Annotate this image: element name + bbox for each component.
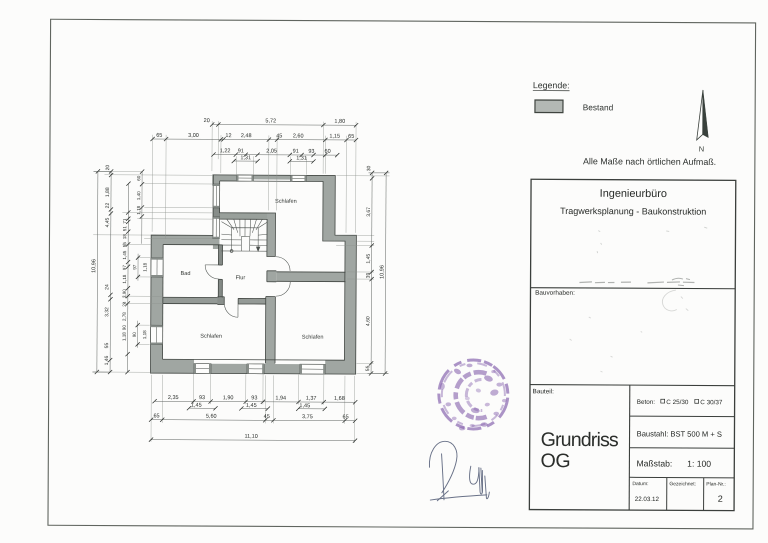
svg-text:2,90: 2,90 <box>122 289 127 298</box>
svg-text:55: 55 <box>365 365 371 371</box>
svg-text:11,10: 11,10 <box>244 434 257 440</box>
svg-text:1,31: 1,31 <box>296 156 307 162</box>
svg-text:18: 18 <box>122 234 127 240</box>
svg-text:93: 93 <box>199 395 205 401</box>
svg-text:2,05: 2,05 <box>266 148 277 154</box>
svg-text:Plan-Nr.:: Plan-Nr.: <box>706 481 725 487</box>
svg-text:Gezeichnet:: Gezeichnet: <box>669 481 696 487</box>
svg-text:1,40: 1,40 <box>136 191 141 200</box>
svg-text:1,45: 1,45 <box>122 250 127 259</box>
svg-text:65: 65 <box>156 133 162 139</box>
svg-text:1,88: 1,88 <box>105 187 111 197</box>
svg-text:C 30/37: C 30/37 <box>700 399 723 406</box>
svg-text:1,15: 1,15 <box>329 134 340 140</box>
svg-text:60: 60 <box>136 175 141 181</box>
svg-text:1,31: 1,31 <box>240 155 251 161</box>
svg-text:39: 39 <box>366 273 372 279</box>
svg-text:65: 65 <box>343 414 349 420</box>
svg-text:Baustahl: BST 500 M + S: Baustahl: BST 500 M + S <box>637 429 722 438</box>
svg-text:91: 91 <box>293 149 299 155</box>
svg-text:3,75: 3,75 <box>302 414 313 420</box>
svg-text:Grundriss: Grundriss <box>541 429 619 451</box>
svg-text:Schlafen: Schlafen <box>275 199 297 205</box>
svg-text:1,90: 1,90 <box>223 395 234 401</box>
svg-text:1,68: 1,68 <box>334 396 345 402</box>
svg-text:1,37: 1,37 <box>306 396 317 402</box>
svg-text:90: 90 <box>122 325 127 331</box>
svg-text:Schlafen: Schlafen <box>200 334 222 340</box>
svg-text:Schlafen: Schlafen <box>302 335 324 341</box>
svg-text:2,78: 2,78 <box>122 312 127 321</box>
svg-text:10,96: 10,96 <box>91 259 97 273</box>
svg-text:22.03.12: 22.03.12 <box>635 496 660 503</box>
svg-text:65: 65 <box>153 413 159 419</box>
svg-text:Flur: Flur <box>236 275 246 281</box>
svg-text:N: N <box>699 144 704 153</box>
svg-text:22: 22 <box>105 203 111 209</box>
svg-text:91: 91 <box>238 148 244 154</box>
svg-text:Ingenieurbüro: Ingenieurbüro <box>600 188 667 200</box>
svg-text:55: 55 <box>104 343 110 349</box>
svg-text:51: 51 <box>122 226 127 232</box>
svg-text:Bauteil:: Bauteil: <box>533 388 555 395</box>
svg-text:65: 65 <box>348 134 354 140</box>
svg-text:2,60: 2,60 <box>293 133 304 139</box>
svg-text:71: 71 <box>122 218 127 224</box>
svg-text:3,00: 3,00 <box>188 133 199 139</box>
svg-text:1,18: 1,18 <box>136 205 141 214</box>
svg-text:3,32: 3,32 <box>104 307 110 317</box>
svg-text:Legende:: Legende: <box>533 80 570 90</box>
svg-text:Alle Maße nach örtlichen Aufma: Alle Maße nach örtlichen Aufmaß. <box>583 156 716 167</box>
svg-text:90: 90 <box>132 332 137 338</box>
svg-text:1,18: 1,18 <box>122 332 127 341</box>
svg-text:10,96: 10,96 <box>379 265 385 279</box>
svg-text:3,67: 3,67 <box>366 207 372 217</box>
svg-text:1,45: 1,45 <box>366 254 372 264</box>
svg-text:4,60: 4,60 <box>365 316 371 326</box>
svg-text:Beton:: Beton: <box>637 399 655 406</box>
svg-text:60: 60 <box>325 149 331 155</box>
svg-text:12: 12 <box>225 133 231 139</box>
svg-text:Bauvorhaben:: Bauvorhaben: <box>535 290 575 297</box>
svg-text:5,72: 5,72 <box>265 118 276 124</box>
svg-text:20: 20 <box>105 165 111 171</box>
svg-text:1,18: 1,18 <box>142 330 147 339</box>
svg-text:20: 20 <box>204 118 210 124</box>
svg-text:5,60: 5,60 <box>206 414 217 420</box>
svg-text:1,45: 1,45 <box>246 403 257 409</box>
svg-text:1,45: 1,45 <box>191 403 202 409</box>
svg-text:1,45: 1,45 <box>299 403 310 409</box>
svg-text:93: 93 <box>251 395 257 401</box>
svg-text:C 25/30: C 25/30 <box>666 399 689 406</box>
svg-text:1,22: 1,22 <box>220 148 231 154</box>
svg-text:2: 2 <box>718 494 723 504</box>
svg-text:45: 45 <box>264 414 270 420</box>
svg-text:1,94: 1,94 <box>275 396 286 402</box>
svg-text:24: 24 <box>104 284 110 290</box>
svg-text:Datum:: Datum: <box>632 481 648 487</box>
svg-text:97: 97 <box>122 265 127 271</box>
svg-text:1: 100: 1: 100 <box>687 459 711 469</box>
svg-text:24: 24 <box>122 301 127 307</box>
svg-text:Bad: Bad <box>180 271 190 277</box>
svg-text:30: 30 <box>366 165 372 171</box>
svg-text:2,48: 2,48 <box>241 133 252 139</box>
svg-text:1,80: 1,80 <box>334 119 345 125</box>
svg-text:4,45: 4,45 <box>105 217 111 227</box>
svg-text:1,46: 1,46 <box>104 355 110 365</box>
svg-text:2,35: 2,35 <box>168 395 179 401</box>
svg-text:45: 45 <box>276 133 282 139</box>
svg-text:97: 97 <box>132 264 137 270</box>
svg-text:93: 93 <box>308 149 314 155</box>
svg-text:Maßstab:: Maßstab: <box>636 458 672 468</box>
svg-text:1,18: 1,18 <box>142 262 147 271</box>
svg-text:1,18: 1,18 <box>122 274 127 283</box>
svg-text:Tragwerksplanung - Baukonstruk: Tragwerksplanung - Baukonstruktion <box>560 206 706 217</box>
svg-text:Bestand: Bestand <box>583 102 614 112</box>
svg-text:55: 55 <box>122 242 127 248</box>
svg-text:OG: OG <box>540 450 570 472</box>
